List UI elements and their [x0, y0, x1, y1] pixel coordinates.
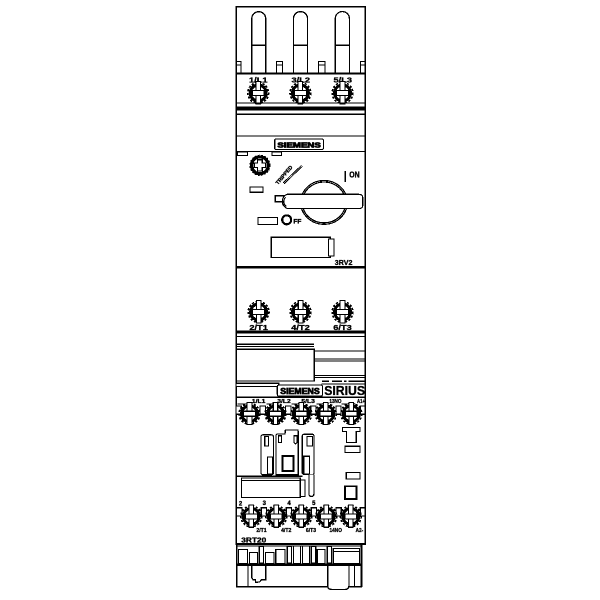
svg-text:FF: FF	[293, 218, 301, 225]
svg-text:2/T1: 2/T1	[249, 323, 268, 332]
svg-text:ON: ON	[349, 171, 360, 180]
svg-text:A1+: A1+	[357, 399, 365, 405]
svg-text:6/T3: 6/T3	[306, 528, 316, 534]
svg-text:4/T2: 4/T2	[291, 323, 310, 332]
svg-text:3RV2: 3RV2	[335, 258, 353, 267]
svg-text:14NO: 14NO	[330, 528, 343, 534]
svg-text:A2-: A2-	[356, 528, 364, 534]
svg-text:6/T3: 6/T3	[333, 323, 352, 332]
svg-text:SIRIUS: SIRIUS	[324, 383, 365, 398]
svg-text:SIEMENS: SIEMENS	[280, 387, 320, 396]
svg-text:SIEMENS: SIEMENS	[277, 141, 321, 150]
svg-text:2/T1: 2/T1	[256, 528, 266, 534]
svg-text:4/T2: 4/T2	[281, 528, 291, 534]
svg-text:3/L2: 3/L2	[277, 399, 291, 405]
